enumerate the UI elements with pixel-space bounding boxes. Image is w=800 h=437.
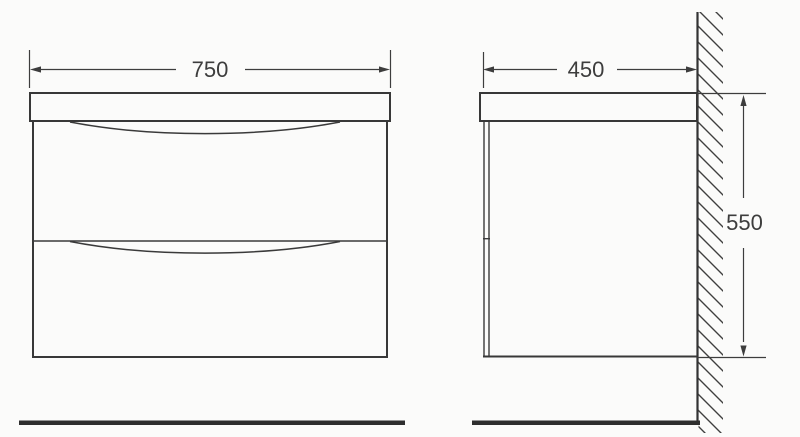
bottom-drawer-handle-curve [70,242,340,254]
front-top-panel [30,93,390,121]
floor-line-left [19,421,405,426]
technical-drawing: 750 450 [0,0,800,437]
arrowhead-right-icon [379,66,390,72]
arrowhead-left-icon [483,66,494,72]
arrowhead-right-icon [686,66,697,72]
arrowhead-up-icon [740,95,746,106]
front-view: 750 [19,50,405,425]
front-width-label: 750 [192,57,229,82]
arrowhead-left-icon [30,66,41,72]
front-cabinet-body [33,121,387,357]
side-depth-label: 450 [568,57,605,82]
top-drawer-handle-curve [70,122,340,134]
side-height-label: 550 [726,210,763,235]
wall-hatch [699,12,724,433]
side-view: 450 550 [472,12,766,433]
floor-line-right [472,421,700,426]
side-top-panel [480,93,697,121]
arrowhead-down-icon [740,346,746,357]
drawing-canvas: 750 450 [0,0,800,437]
